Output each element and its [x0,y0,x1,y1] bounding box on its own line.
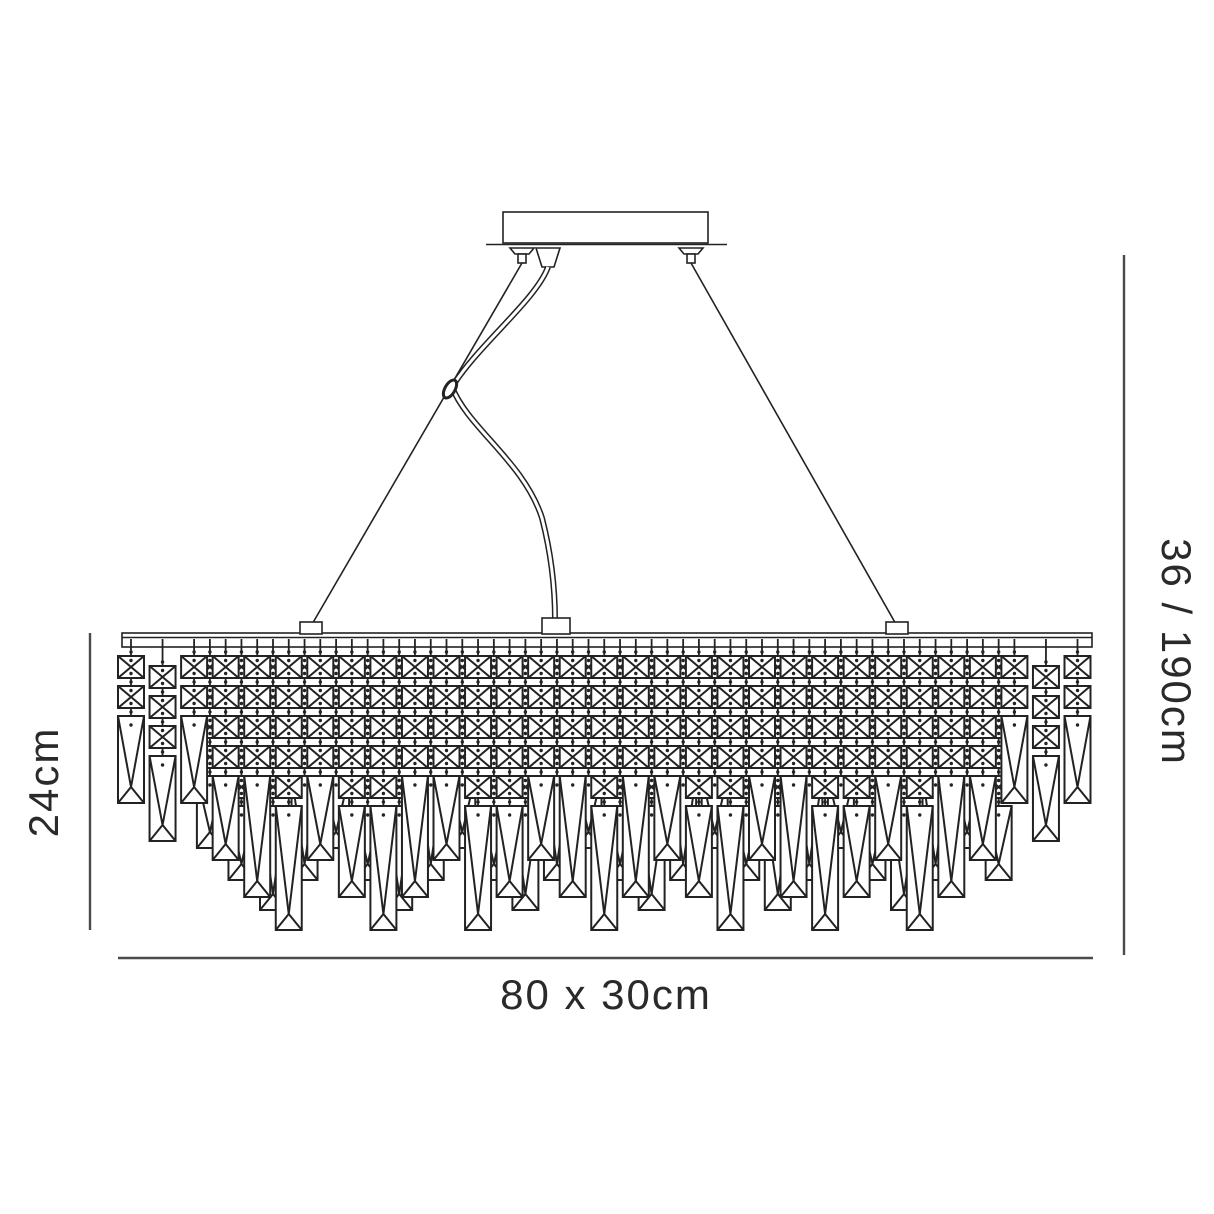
crystal-strand [118,639,144,803]
crystal-strand [844,639,870,897]
crystal-strand [938,639,964,897]
cable-gripper-right [679,248,703,263]
crystal-strand [402,639,428,897]
dimension-diagram: 24cm 36 / 190cm 80 x 30cm [0,0,1214,1214]
crystal-strand [244,639,270,897]
crystal-strand [1001,639,1027,803]
crystal-strand [970,639,996,860]
crystal-strand [339,639,365,897]
crystal-strand [307,639,333,860]
crystal-strand [560,639,586,897]
crystal-strand [1065,639,1091,803]
crystal-strand [276,639,302,930]
cable-gripper-left [510,248,534,263]
crystal-strand [907,639,933,930]
ceiling-canopy [486,212,727,267]
crystal-strand [812,639,838,930]
wire-anchor-left [300,622,322,634]
crystal-strand [686,639,712,897]
crystal-strand [370,639,396,930]
crystal-strand [497,639,523,897]
suspension-wire-right [691,263,897,626]
dimension-label-total-height: 36 / 190cm [1153,538,1200,766]
power-cord-inner [452,267,555,620]
crystal-strand [150,639,176,841]
dimension-label-body-height: 24cm [20,727,67,838]
crystal-strand [465,639,491,930]
crystal-strands [118,639,1091,930]
dimension-label-width-depth: 80 x 30cm [500,971,712,1018]
crystal-strand [528,639,554,860]
crystal-strand [591,639,617,930]
crystal-strand [781,639,807,897]
crystal-strand [213,639,239,860]
chandelier-line-drawing: 24cm 36 / 190cm 80 x 30cm [0,0,1214,1214]
power-cord-outer [452,267,555,620]
cord-connector [542,618,570,634]
cord-strain-relief [536,248,560,267]
crystal-strand [434,639,460,860]
crystal-strand [1033,639,1059,841]
wire-anchor-right [886,622,908,634]
crystal-strand [717,639,743,930]
crystal-strand [623,639,649,897]
crystal-strand [749,639,775,860]
fixture-rail [122,618,1092,647]
suspension [311,263,897,626]
crystal-strand [654,639,680,860]
crystal-strand [181,639,207,803]
crystal-strand [875,639,901,860]
canopy-box [503,212,708,243]
